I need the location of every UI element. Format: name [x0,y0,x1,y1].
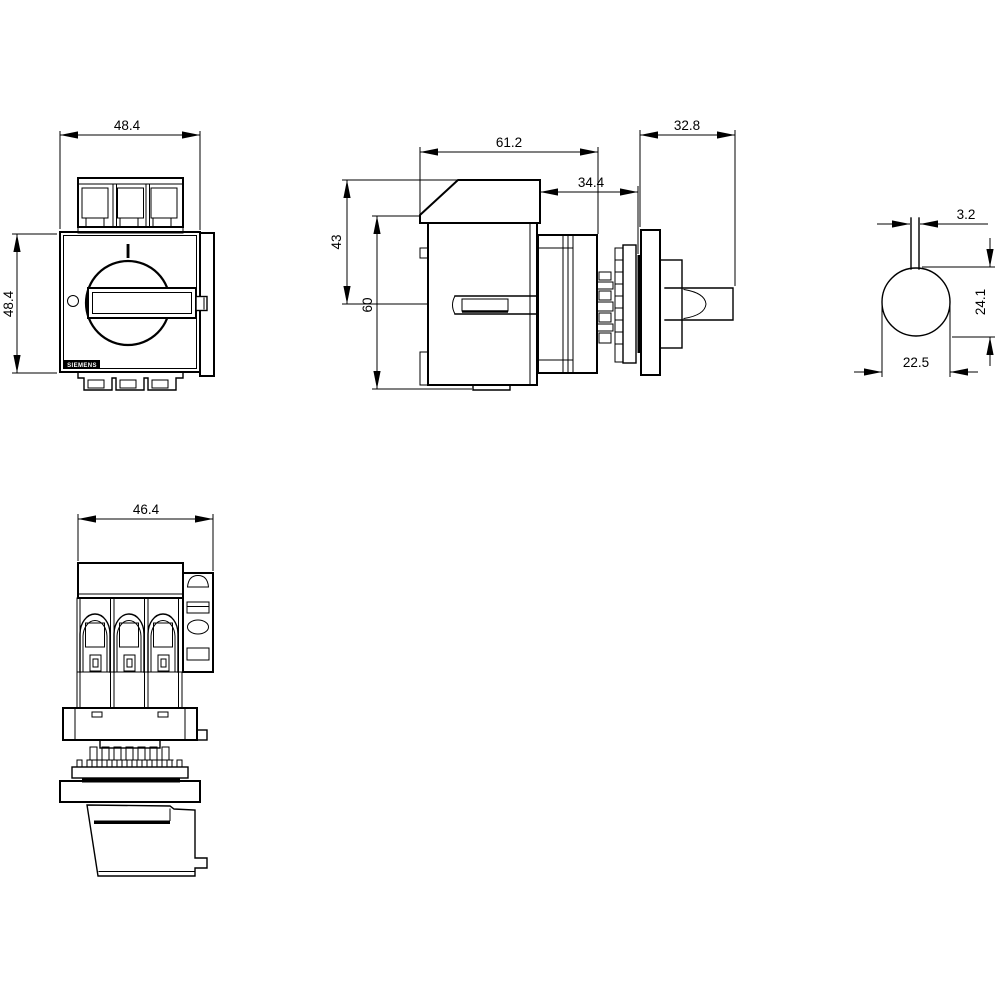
handle-hub-block [660,260,682,348]
front-terminal-block-top [78,178,183,233]
terminal-block-outline [78,178,183,227]
dim-knob-diameter: 22.5 [854,303,978,377]
terminal-foot [86,218,104,227]
threaded-ring-teeth [615,260,623,344]
dim-label-knob-height: 24.1 [973,289,988,315]
bottom-view: 46.4 [60,502,213,876]
rail-dome-cutout [188,576,209,588]
switch-position-marking: I [125,241,131,263]
dim-label-side-overall-height: 60 [360,297,375,312]
front-view: I SIEMENS 48.4 48.4 [1,118,214,390]
dimension-drawing-page: I SIEMENS 48.4 48.4 [0,0,1000,1000]
knob-outline [87,805,207,876]
side-view: 61.2 34.4 43 60 32.8 [329,118,735,390]
dim-blade-thickness: 3.2 [877,207,988,224]
tower-screw-port-inner [161,659,166,667]
tower-window [86,623,105,647]
escutcheon-plate-bottom [60,781,200,802]
tower-arch-inner [151,621,175,673]
dim-label-side-depth: 61.2 [496,135,522,150]
tower-arch-inner [83,621,107,673]
handle-grip-profile [665,288,733,320]
knob-bottom-profile [87,805,207,876]
spline-teeth-row-1 [90,747,169,760]
handle-grip-curve [684,290,706,319]
bottom-foot-inner [120,380,136,388]
slot-inner [462,299,508,311]
tower-screw-port-inner [127,659,132,667]
dim-label-blade-thickness: 3.2 [957,207,976,222]
dim-label-side-rear-depth: 34.4 [578,175,605,190]
dim-label-side-upper-height: 43 [329,234,344,249]
rotary-handle-end-cap [196,297,207,311]
terminal-window [82,188,108,218]
dim-label-handle-projection: 32.8 [674,118,700,133]
brand-badge-label: SIEMENS [67,363,97,369]
base-plate-notch [158,712,168,717]
handle-section-view: 3.2 24.1 22.5 [854,207,995,377]
slot-left-curve [453,296,456,314]
dim-label-front-height: 48.4 [1,290,16,317]
base-plate-notch [92,712,102,717]
knob-circle [882,268,950,336]
bottom-side-rail [183,573,213,672]
side-mount-tab-bottom [420,352,428,385]
rail-slot-cutout [187,602,209,613]
side-body [428,223,537,385]
dim-front-width: 48.4 [60,118,200,230]
bottom-top-band [78,563,183,598]
side-bezel [420,180,540,223]
handle-escutcheon-plate [641,230,660,375]
spline-teeth-row-2 [77,760,182,767]
locking-ring-disc [623,245,636,363]
terminal-tower-2 [114,614,144,672]
dim-label-knob-diameter: 22.5 [903,355,929,370]
terminal-tower-1 [80,614,110,672]
terminal-foot [120,218,138,227]
tower-screw-port [124,655,135,671]
dim-side-depth: 61.2 [420,135,598,234]
dim-label-bottom-width: 46.4 [133,502,160,517]
side-rear-block [538,235,597,373]
bottom-feet-outline [78,372,183,390]
side-shaft-slot [453,296,538,314]
dim-bottom-width: 46.4 [78,502,213,571]
tower-window [120,623,139,647]
terminal-window [151,188,177,218]
mounting-collar [72,767,188,778]
base-plate [63,708,197,740]
rail-rect-cutout [187,648,209,660]
side-mount-tab-top [420,248,428,258]
dim-handle-projection: 32.8 [640,118,735,286]
dim-front-height: 48.4 [1,234,57,373]
bottom-foot-inner [152,380,168,388]
dim-label-front-width: 48.4 [114,118,141,133]
bottom-foot-inner [88,380,104,388]
threaded-ring [615,248,623,362]
knob-grip-edge [94,821,170,825]
dim-side-rear-depth: 34.4 [540,175,638,254]
dim-knob-height: 24.1 [922,238,995,366]
tower-window [154,623,173,647]
dim-side-overall-height: 60 [360,216,472,389]
terminal-window [118,188,144,218]
front-terminal-feet-bottom [78,372,183,390]
tower-screw-port-inner [93,659,98,667]
tower-arch-inner [117,621,141,673]
terminal-tower-3 [148,614,178,672]
tower-screw-port [90,655,101,671]
terminal-foot [153,218,171,227]
tower-screw-port [158,655,169,671]
escutcheon-front-edge [82,779,180,783]
base-plate-tab [197,730,207,740]
drawing-canvas: I SIEMENS 48.4 48.4 [0,0,1000,1000]
coupling-shaft-teeth [597,272,613,343]
rail-oval-cutout [188,620,209,634]
